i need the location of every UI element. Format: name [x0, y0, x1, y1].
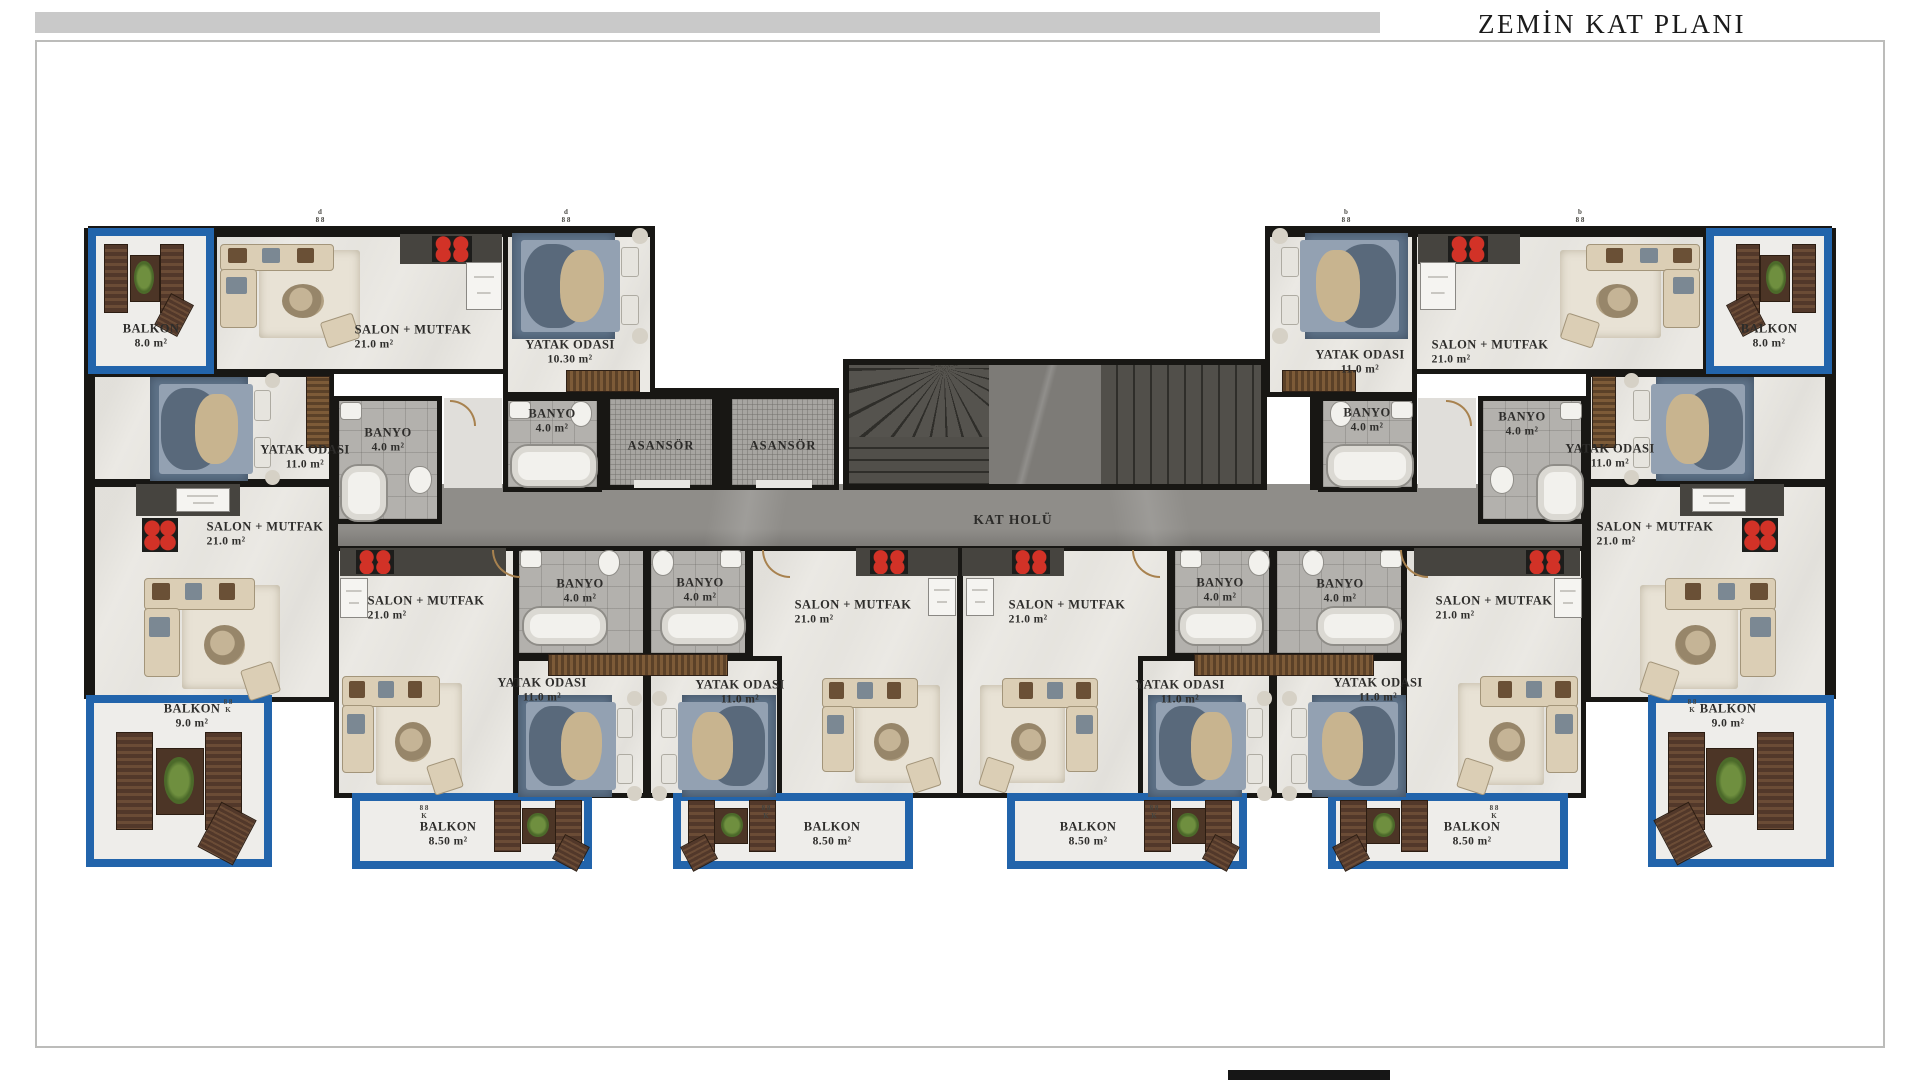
cooktop-icon — [1012, 550, 1050, 574]
page-title: ZEMİN KAT PLANI — [1478, 8, 1746, 40]
room-label: BANYO4.0 m² — [1498, 408, 1545, 439]
sink-icon — [340, 402, 362, 420]
stair-treads — [1101, 365, 1261, 484]
sink-icon — [1391, 401, 1413, 419]
room-label: BALKON8.50 m² — [420, 818, 477, 849]
sink-icon — [520, 550, 542, 568]
room-label: YATAK ODASI11.0 m² — [497, 674, 586, 705]
outdoor-furniture — [104, 244, 184, 322]
bathtub-icon — [1316, 606, 1402, 646]
elevator-label: ASANSÖR — [750, 439, 817, 454]
hall-corridor — [336, 484, 1586, 548]
outdoor-furniture — [1340, 800, 1428, 858]
wardrobe — [548, 654, 728, 676]
room-label: SALON + MUTFAK21.0 m² — [368, 592, 485, 623]
outdoor-furniture — [494, 800, 582, 858]
room-label: SALON + MUTFAK21.0 m² — [355, 321, 472, 352]
cooktop-icon — [142, 518, 178, 552]
toilet-icon — [598, 550, 620, 576]
dimension-mark: 8 8K — [1688, 698, 1697, 714]
room-label: YATAK ODASI11.0 m² — [695, 676, 784, 707]
room-label: BALKON8.50 m² — [1060, 818, 1117, 849]
wardrobe — [566, 370, 640, 392]
toilet-icon — [408, 466, 432, 494]
room-label: YATAK ODASI11.0 m² — [1315, 346, 1404, 377]
toilet-icon — [1248, 550, 1270, 576]
room-label: BALKON8.0 m² — [123, 320, 180, 351]
elevator-door-sill — [756, 480, 812, 488]
kitchen-appliance — [928, 578, 956, 616]
cooktop-icon — [1742, 518, 1778, 552]
room-label: YATAK ODASI11.0 m² — [1333, 674, 1422, 705]
sofa-set — [1560, 244, 1700, 344]
bathtub-icon — [522, 606, 608, 646]
room-label: BALKON8.0 m² — [1741, 320, 1798, 351]
room-label: YATAK ODASI11.0 m² — [1565, 440, 1654, 471]
sink-icon — [1380, 550, 1402, 568]
outdoor-furniture — [116, 732, 242, 844]
room-label: YATAK ODASI10.30 m² — [525, 336, 614, 367]
kitchen-appliance — [1554, 578, 1582, 618]
room-label: BANYO4.0 m² — [528, 405, 575, 436]
hall-label: KAT HOLÜ — [973, 512, 1052, 528]
kitchen-appliance — [1420, 262, 1456, 310]
sink-icon — [1180, 550, 1202, 568]
kitchen-appliance — [176, 488, 230, 512]
floor-plan-page: ZEMİN KAT PLANI — [0, 0, 1920, 1080]
room-label: YATAK ODASI11.0 m² — [260, 441, 349, 472]
elevator-door-sill — [634, 480, 690, 488]
room-label: BANYO4.0 m² — [676, 574, 723, 605]
kitchen-appliance — [340, 578, 368, 618]
bed — [1148, 700, 1268, 792]
room-label: SALON + MUTFAK21.0 m² — [1436, 592, 1553, 623]
bathtub-icon — [660, 606, 746, 646]
wall — [715, 394, 729, 490]
dimension-mark: d8 8 — [562, 208, 571, 224]
bed — [150, 382, 276, 476]
room-label: SALON + MUTFAK21.0 m² — [1432, 336, 1549, 367]
kitchen-appliance — [966, 578, 994, 616]
wardrobe — [306, 376, 330, 448]
kitchen-appliance — [466, 262, 502, 310]
kitchen-appliance — [1692, 488, 1746, 512]
cooktop-icon — [870, 550, 908, 574]
sink-icon — [1560, 402, 1582, 420]
bed — [656, 700, 776, 792]
outdoor-furniture — [1668, 732, 1794, 844]
room-label: SALON + MUTFAK21.0 m² — [1597, 518, 1714, 549]
elevator-label: ASANSÖR — [628, 439, 695, 454]
sofa-set — [144, 578, 280, 696]
room-label: BANYO4.0 m² — [1343, 404, 1390, 435]
room-label: SALON + MUTFAK21.0 m² — [207, 518, 324, 549]
dimension-mark: 8 8K — [224, 698, 233, 714]
bathtub-icon — [1326, 444, 1414, 488]
sofa-set — [980, 678, 1098, 790]
toilet-icon — [1490, 466, 1514, 494]
room-label: SALON + MUTFAK21.0 m² — [1009, 596, 1126, 627]
bed — [512, 238, 644, 334]
top-gray-bar — [35, 12, 1380, 33]
sofa-set — [1458, 676, 1578, 792]
toilet-icon — [1302, 550, 1324, 576]
room-label: BALKON8.50 m² — [1444, 818, 1501, 849]
room-label: BANYO4.0 m² — [364, 424, 411, 455]
wardrobe — [1194, 654, 1374, 676]
sofa-set — [220, 244, 360, 344]
outdoor-furniture — [1736, 244, 1816, 322]
dimension-mark: d8 8 — [316, 208, 325, 224]
room-label: BANYO4.0 m² — [1316, 575, 1363, 606]
dimension-mark: 8 8K — [1150, 804, 1159, 820]
dimension-mark: 8 8K — [420, 804, 429, 820]
room-label: BANYO4.0 m² — [556, 575, 603, 606]
room-label: BALKON8.50 m² — [804, 818, 861, 849]
bed — [1276, 238, 1408, 334]
sofa-set — [822, 678, 940, 790]
room-label: BALKON9.0 m² — [1700, 700, 1757, 731]
stair-landing — [989, 365, 1101, 484]
bottom-dark-bar — [1228, 1070, 1390, 1080]
cooktop-icon — [356, 550, 394, 574]
dimension-mark: b8 8 — [1576, 208, 1585, 224]
bathtub-icon — [340, 464, 388, 522]
room-label: BALKON9.0 m² — [164, 700, 221, 731]
room-label: SALON + MUTFAK21.0 m² — [795, 596, 912, 627]
bathtub-icon — [510, 444, 598, 488]
wardrobe — [1592, 376, 1616, 448]
bathtub-icon — [1536, 464, 1584, 522]
bed — [1286, 700, 1406, 792]
cooktop-icon — [1448, 236, 1488, 262]
stairwell — [843, 359, 1267, 490]
toilet-icon — [652, 550, 674, 576]
stair-treads — [849, 437, 989, 484]
sink-icon — [720, 550, 742, 568]
sofa-set — [342, 676, 462, 792]
cooktop-icon — [1526, 550, 1564, 574]
room-label: BANYO4.0 m² — [1196, 574, 1243, 605]
stair-fan — [849, 365, 989, 437]
room-label: YATAK ODASI11.0 m² — [1135, 676, 1224, 707]
dimension-mark: 8 8K — [1490, 804, 1499, 820]
cooktop-icon — [432, 236, 472, 262]
bathtub-icon — [1178, 606, 1264, 646]
sofa-set — [1640, 578, 1776, 696]
dimension-mark: 8 8K — [762, 804, 771, 820]
dimension-mark: b8 8 — [1342, 208, 1351, 224]
bed — [518, 700, 638, 792]
